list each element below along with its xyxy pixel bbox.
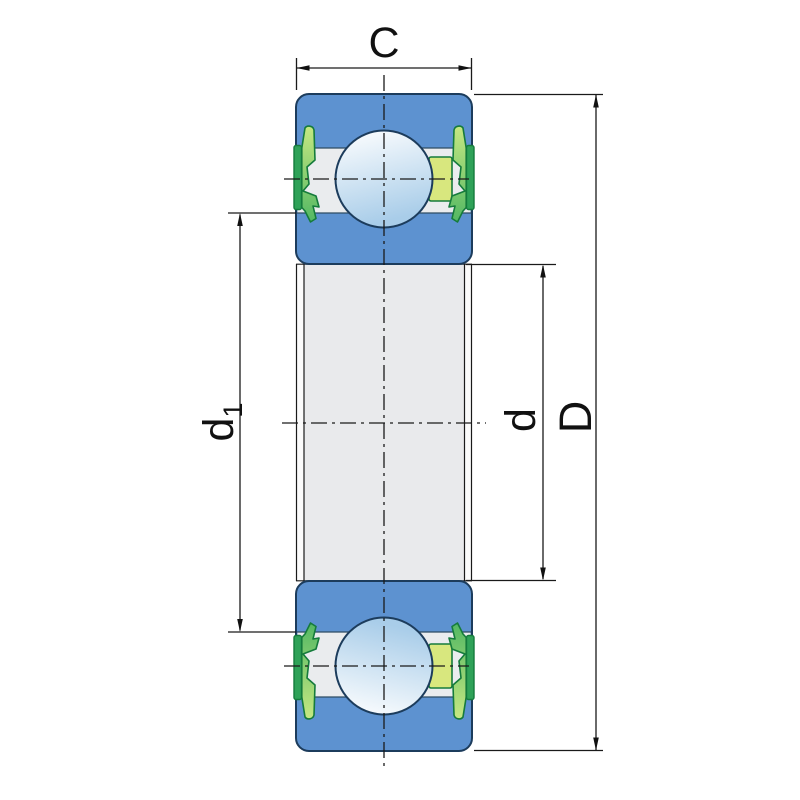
arrowhead-bottom [540, 568, 546, 581]
arrowhead-top [540, 265, 546, 278]
arrowhead-left [297, 65, 310, 71]
dimension-d1: d1 [195, 213, 296, 632]
bearing-cross-section-diagram: C D d d1 [0, 0, 800, 800]
label-d1-subscript: 1 [218, 403, 248, 418]
label-d-bore: d [497, 408, 545, 432]
seal-strip [294, 146, 302, 210]
bearing-top-half [284, 94, 474, 264]
label-d1: d1 [195, 403, 248, 442]
arrowhead-bottom [593, 738, 599, 751]
arrowhead-right [459, 65, 472, 71]
label-d1-main: d [195, 418, 243, 442]
bearing-bottom-half [284, 581, 474, 751]
label-d-outer: D [550, 401, 601, 434]
arrowhead-top [237, 213, 243, 226]
arrowhead-bottom [237, 619, 243, 632]
arrowhead-top [593, 95, 599, 108]
drawing-canvas: C D d d1 [0, 0, 800, 800]
label-c: C [368, 19, 399, 67]
